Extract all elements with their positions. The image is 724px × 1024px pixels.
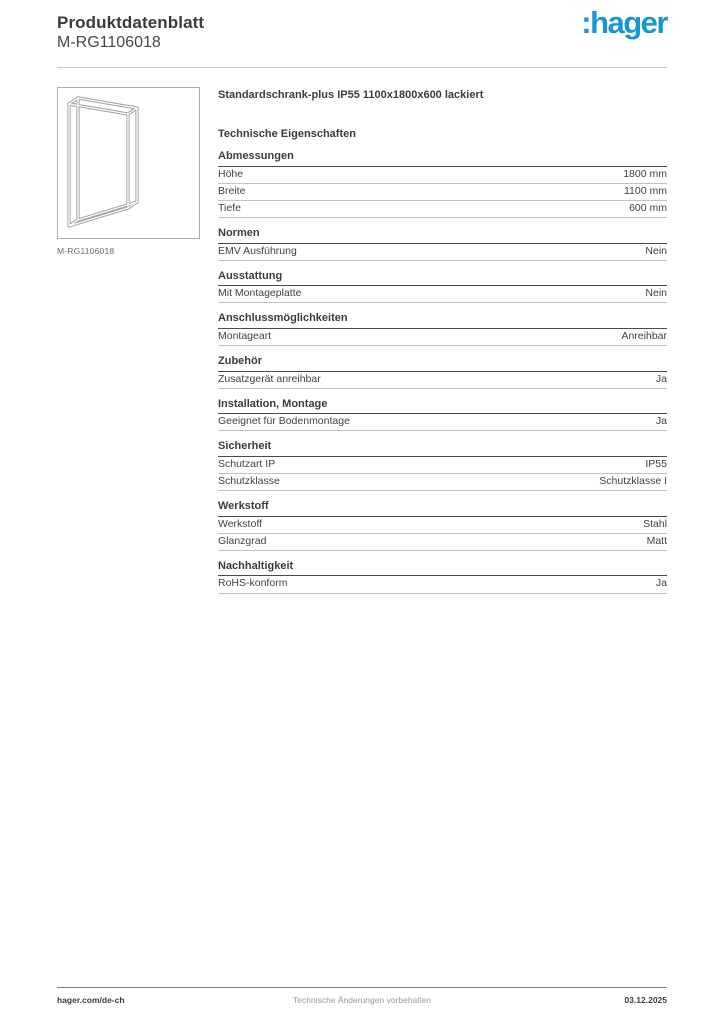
spec-label: Zusatzgerät anreihbar <box>218 374 321 386</box>
spec-row: Breite1100 mm <box>218 184 667 201</box>
spec-value: Schutzklasse I <box>599 476 667 488</box>
spec-label: Tiefe <box>218 203 241 215</box>
page-title: Produktdatenblatt <box>57 13 667 33</box>
spec-section: AusstattungMit MontageplatteNein <box>218 270 667 304</box>
spec-label: Mit Montageplatte <box>218 288 301 300</box>
spec-value: Ja <box>656 416 667 428</box>
spec-value: Nein <box>645 288 667 300</box>
spec-row: RoHS-konformJa <box>218 576 667 593</box>
spec-row: Zusatzgerät anreihbarJa <box>218 372 667 389</box>
spec-value: Stahl <box>643 519 667 531</box>
spec-section-heading: Nachhaltigkeit <box>218 560 667 577</box>
spec-value: 1800 mm <box>623 169 667 181</box>
spec-section-heading: Ausstattung <box>218 270 667 287</box>
spec-row: SchutzklasseSchutzklasse I <box>218 474 667 491</box>
main-content: M-RG1106018 Standardschrank-plus IP55 11… <box>57 87 667 594</box>
product-title: Standardschrank-plus IP55 1100x1800x600 … <box>218 89 667 102</box>
footer-notice: Technische Änderungen vorbehalten <box>293 995 431 1005</box>
spec-value: IP55 <box>645 459 667 471</box>
spec-section-heading: Sicherheit <box>218 440 667 457</box>
spec-value: 1100 mm <box>624 186 667 198</box>
spec-section: SicherheitSchutzart IPIP55SchutzklasseSc… <box>218 440 667 491</box>
spec-section-heading: Werkstoff <box>218 500 667 517</box>
spec-label: Schutzart IP <box>218 459 275 471</box>
spec-section: AbmessungenHöhe1800 mmBreite1100 mmTiefe… <box>218 150 667 218</box>
product-image-column: M-RG1106018 <box>57 87 200 594</box>
spec-section: Installation, MontageGeeignet für Bodenm… <box>218 398 667 432</box>
spec-value: Matt <box>647 536 667 548</box>
spec-sections: AbmessungenHöhe1800 mmBreite1100 mmTiefe… <box>218 150 667 593</box>
spec-label: Höhe <box>218 169 243 181</box>
spec-row: Mit MontageplatteNein <box>218 286 667 303</box>
technical-properties-title: Technische Eigenschaften <box>218 128 667 141</box>
hager-logo: :hager <box>581 6 667 40</box>
product-image-caption: M-RG1106018 <box>57 246 200 256</box>
spec-section: ZubehörZusatzgerät anreihbarJa <box>218 355 667 389</box>
spec-section-heading: Zubehör <box>218 355 667 372</box>
spec-row: MontageartAnreihbar <box>218 329 667 346</box>
spec-row: Tiefe600 mm <box>218 201 667 218</box>
page-header: Produktdatenblatt M-RG1106018 :hager <box>57 0 667 53</box>
spec-value: Anreihbar <box>621 331 667 343</box>
datasheet-page: Produktdatenblatt M-RG1106018 :hager <box>0 0 724 1024</box>
spec-row: WerkstoffStahl <box>218 517 667 534</box>
spec-label: EMV Ausführung <box>218 246 297 258</box>
footer-url: hager.com/de-ch <box>57 995 125 1005</box>
spec-column: Standardschrank-plus IP55 1100x1800x600 … <box>218 87 667 594</box>
cabinet-frame-drawing <box>58 88 199 238</box>
spec-label: Werkstoff <box>218 519 262 531</box>
spec-section: NachhaltigkeitRoHS-konformJa <box>218 560 667 594</box>
spec-value: Nein <box>645 246 667 258</box>
spec-label: Breite <box>218 186 245 198</box>
spec-label: RoHS-konform <box>218 578 287 590</box>
spec-section-heading: Abmessungen <box>218 150 667 167</box>
spec-label: Schutzklasse <box>218 476 280 488</box>
spec-value: 600 mm <box>629 203 667 215</box>
spec-section: NormenEMV AusführungNein <box>218 227 667 261</box>
spec-row: GlanzgradMatt <box>218 534 667 551</box>
product-code: M-RG1106018 <box>57 34 667 52</box>
spec-section-heading: Normen <box>218 227 667 244</box>
spec-section: AnschlussmöglichkeitenMontageartAnreihba… <box>218 312 667 346</box>
spec-section-heading: Anschlussmöglichkeiten <box>218 312 667 329</box>
page-footer: hager.com/de-ch Technische Änderungen vo… <box>57 987 667 1005</box>
spec-row: EMV AusführungNein <box>218 244 667 261</box>
header-divider <box>57 67 667 68</box>
spec-label: Glanzgrad <box>218 536 266 548</box>
spec-section: WerkstoffWerkstoffStahlGlanzgradMatt <box>218 500 667 551</box>
product-image <box>57 87 200 239</box>
spec-label: Geeignet für Bodenmontage <box>218 416 350 428</box>
spec-value: Ja <box>656 374 667 386</box>
spec-section-heading: Installation, Montage <box>218 398 667 415</box>
spec-value: Ja <box>656 578 667 590</box>
spec-row: Schutzart IPIP55 <box>218 457 667 474</box>
spec-row: Höhe1800 mm <box>218 167 667 184</box>
spec-row: Geeignet für BodenmontageJa <box>218 414 667 431</box>
spec-label: Montageart <box>218 331 271 343</box>
footer-date: 03.12.2025 <box>624 995 667 1005</box>
